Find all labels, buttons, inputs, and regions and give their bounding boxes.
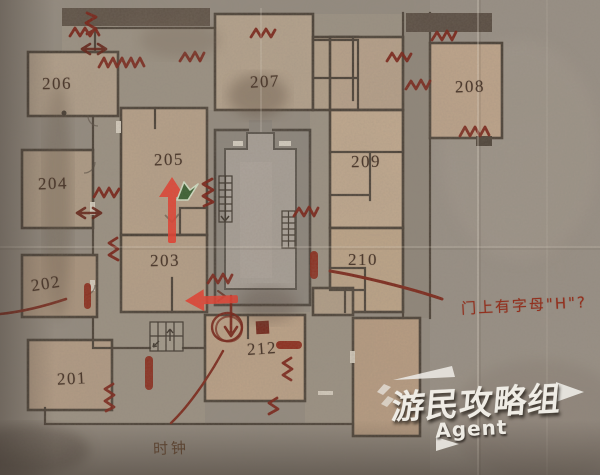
room-label-203: 203 [150,251,180,272]
room-label-201: 201 [56,368,87,390]
room-label-207: 207 [249,71,280,93]
game-map-screen: 206 207 208 205 209 204 203 210 202 212 … [0,0,600,475]
room-label-204: 204 [38,173,69,194]
room-label-212: 212 [246,338,277,360]
room-label-210: 210 [348,250,378,270]
room-label-209: 209 [351,152,381,173]
apartment-floorplan [0,0,600,475]
paper-weathering [0,0,600,475]
room-label-206: 206 [42,74,72,95]
note-clock: 时钟 [153,437,190,459]
room-label-208: 208 [455,76,486,97]
room-label-205: 205 [154,149,185,170]
